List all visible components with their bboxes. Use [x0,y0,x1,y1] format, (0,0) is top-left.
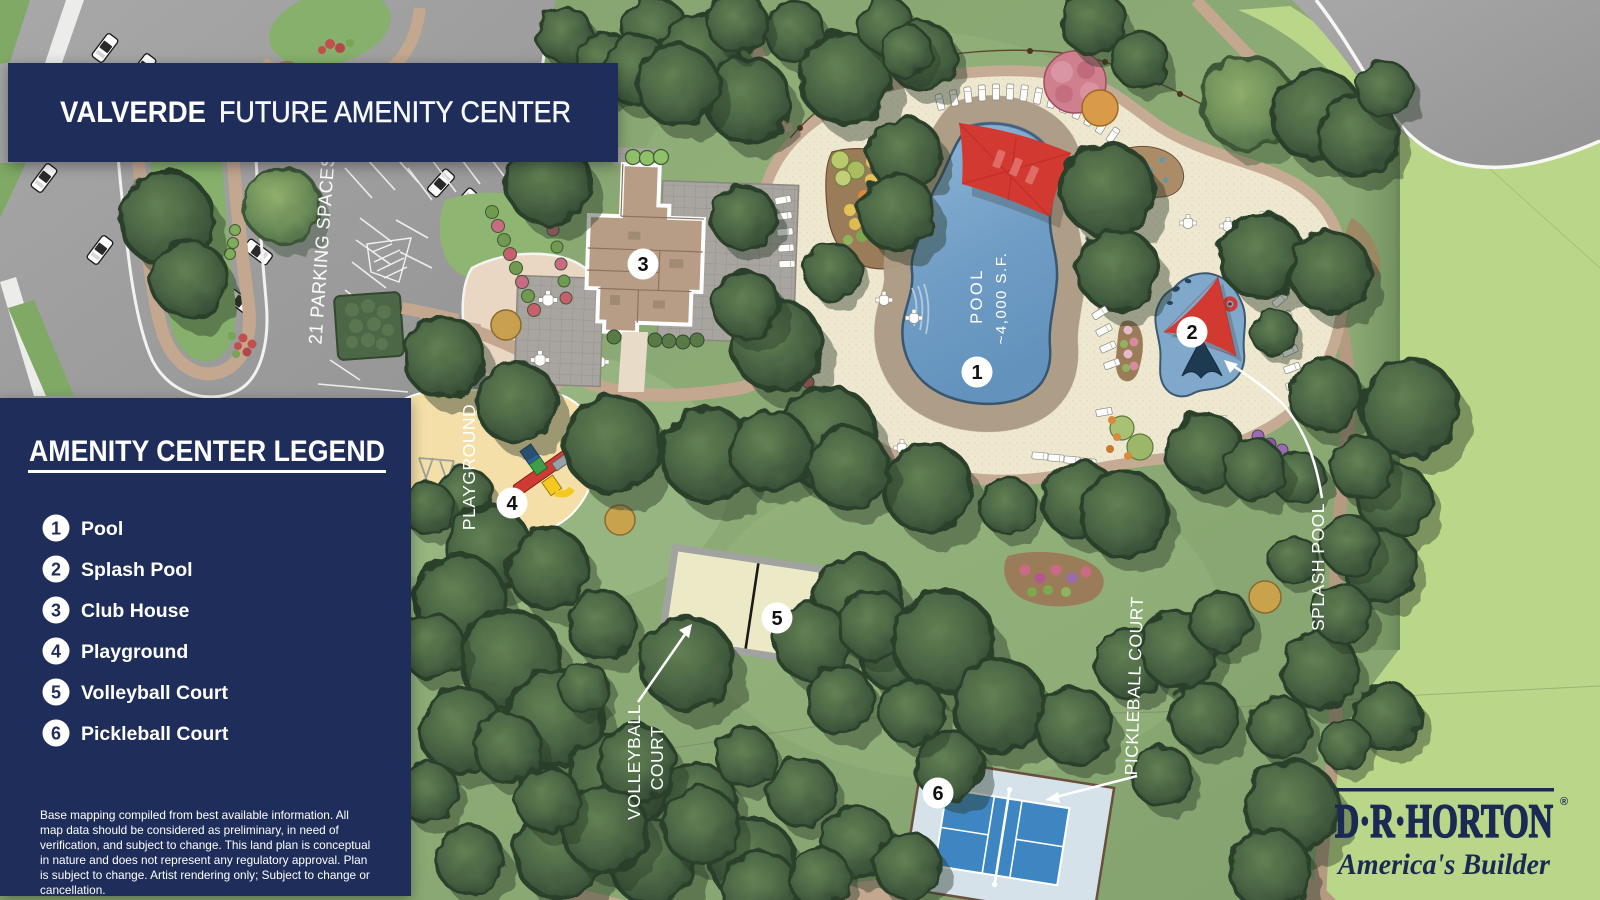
svg-text:6: 6 [51,724,61,744]
svg-text:Club House: Club House [81,600,189,622]
svg-text:SPLASH POOL: SPLASH POOL [1308,503,1328,631]
svg-text:PLAYGROUND: PLAYGROUND [459,404,479,530]
svg-text:3: 3 [51,601,61,621]
svg-text:Volleyball Court: Volleyball Court [81,682,228,704]
svg-text:AMENITY CENTER LEGEND: AMENITY CENTER LEGEND [29,435,385,468]
svg-text:FUTURE AMENITY CENTER: FUTURE AMENITY CENTER [219,96,571,129]
svg-text:5: 5 [51,683,61,703]
svg-text:2: 2 [51,560,61,580]
svg-text:D·R·HORTON: D·R·HORTON [1335,795,1553,848]
svg-text:2: 2 [1186,322,1197,344]
svg-text:~4,000 S.F.: ~4,000 S.F. [993,252,1010,345]
svg-text:verification, and subject to c: verification, and subject to change. Thi… [40,838,370,852]
svg-text:3: 3 [637,254,648,276]
svg-text:VALVERDE: VALVERDE [60,96,206,129]
svg-text:is subject to change. Artist r: is subject to change. Artist rendering o… [40,868,370,882]
svg-text:in nature and does not represe: in nature and does not represent any reg… [40,853,367,867]
svg-text:cancellation.: cancellation. [40,883,106,897]
svg-text:America's Builder: America's Builder [1336,848,1550,881]
svg-text:Base mapping compiled from bes: Base mapping compiled from best availabl… [40,808,349,822]
svg-text:®: ® [1560,796,1568,808]
svg-text:6: 6 [932,783,943,805]
svg-text:COURT: COURT [647,726,667,790]
svg-text:4: 4 [51,642,61,662]
svg-text:Pickleball Court: Pickleball Court [81,723,229,745]
svg-text:POOL: POOL [968,268,986,324]
svg-text:Pool: Pool [81,518,123,540]
svg-text:Playground: Playground [81,641,188,663]
svg-text:1: 1 [971,362,982,384]
svg-text:5: 5 [771,608,782,630]
svg-text:1: 1 [51,519,61,539]
svg-text:Splash Pool: Splash Pool [81,559,193,581]
svg-text:VOLLEYBALL: VOLLEYBALL [624,704,644,820]
svg-text:4: 4 [506,493,518,515]
svg-text:map data should be considered: map data should be considered as prelimi… [40,823,340,837]
